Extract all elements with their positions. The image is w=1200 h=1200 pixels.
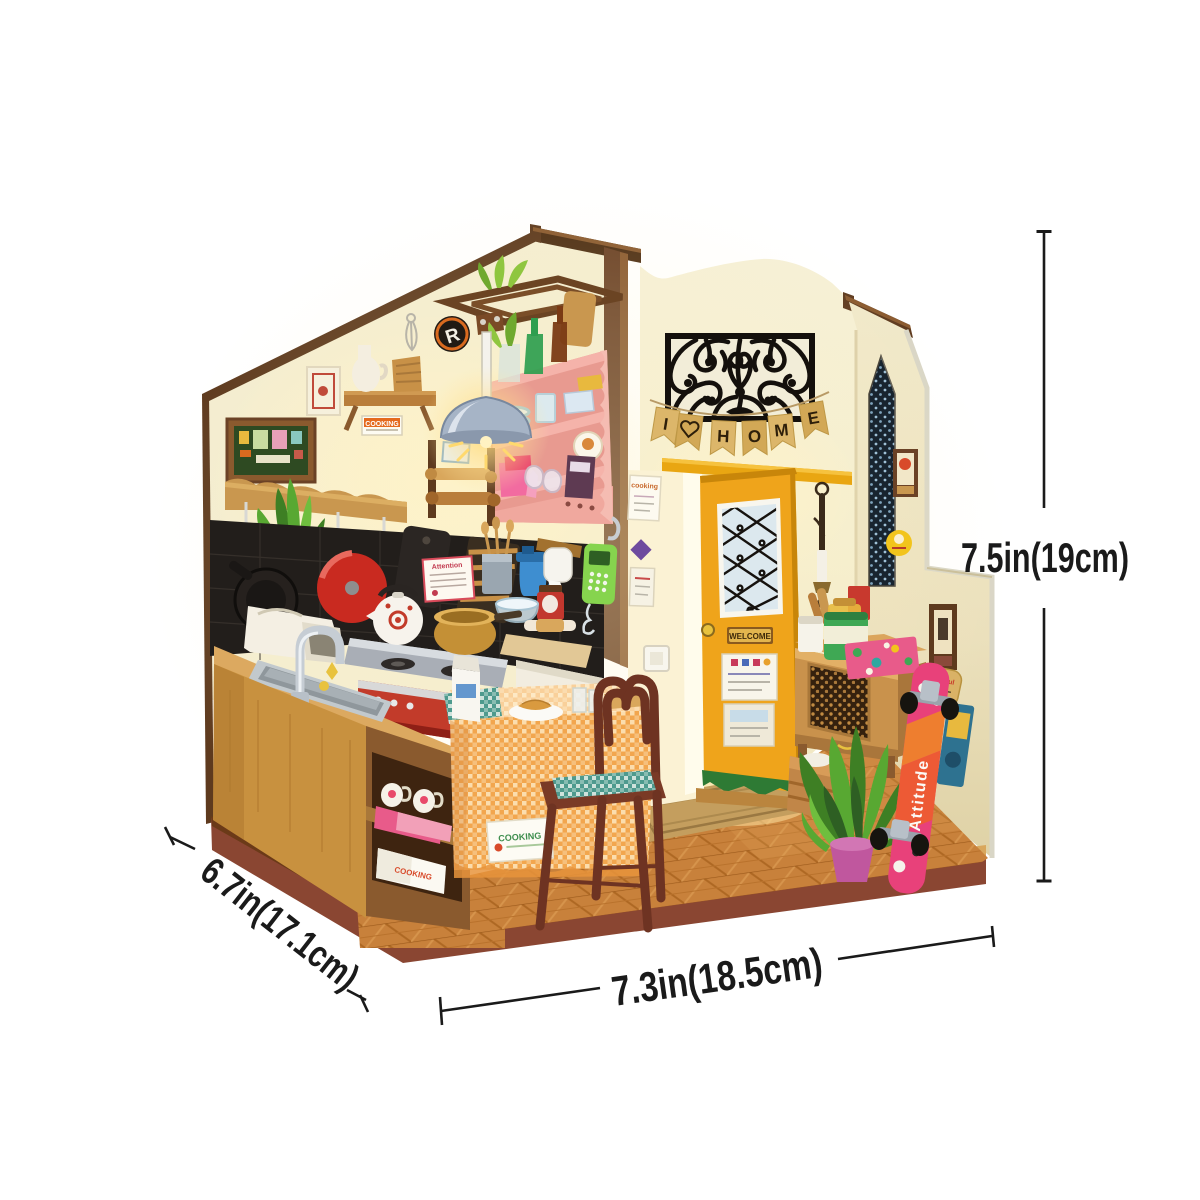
svg-text:cooking: cooking [631,482,658,490]
svg-text:O: O [748,427,762,446]
svg-text:H: H [717,427,730,447]
svg-text:7.5in(19cm): 7.5in(19cm) [961,534,1129,581]
svg-text:M: M [773,420,789,440]
svg-text:COOKING: COOKING [365,421,399,428]
svg-text:WELCOME: WELCOME [729,632,771,641]
